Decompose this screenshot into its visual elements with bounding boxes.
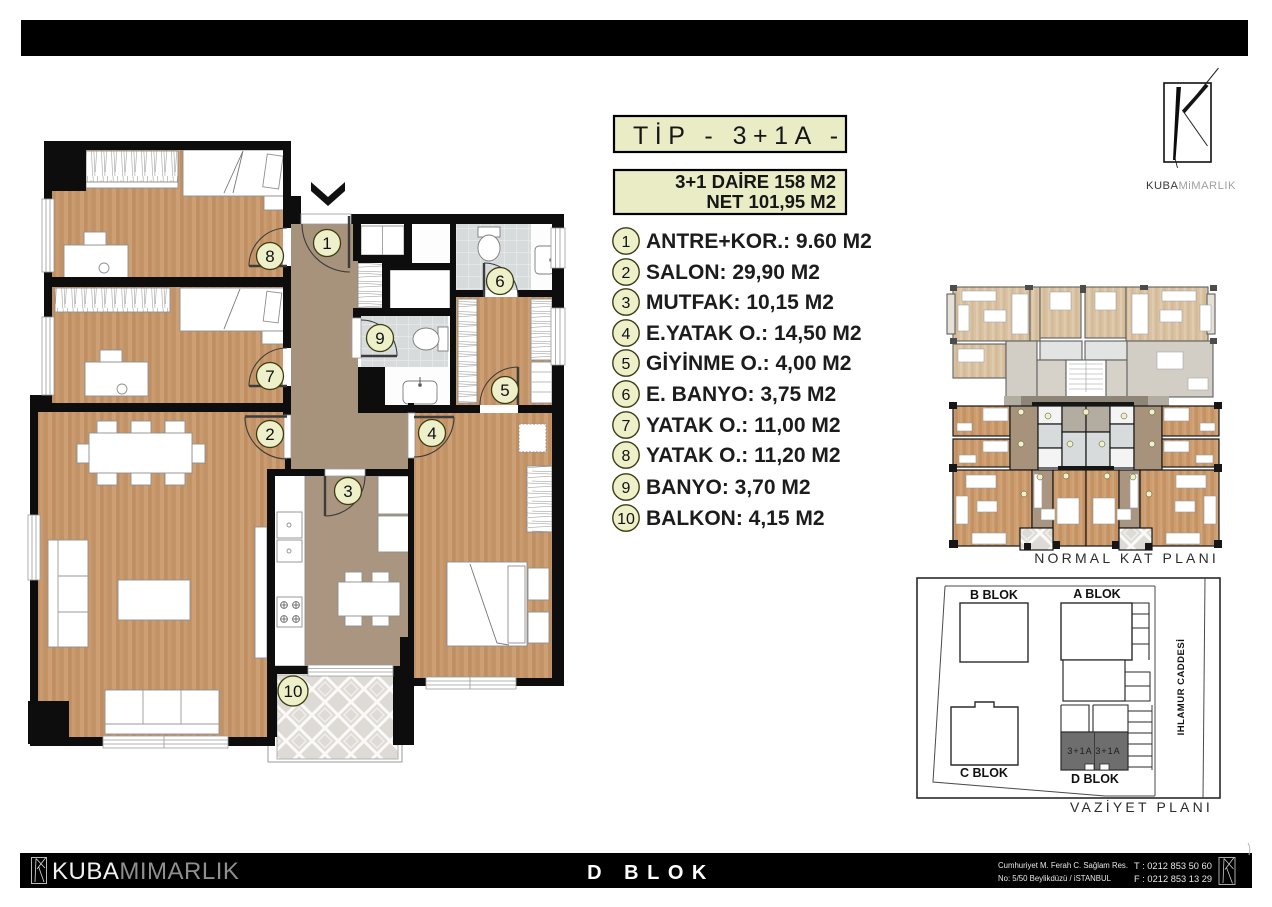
svg-text:KUBAMIMARLIK: KUBAMIMARLIK [52,858,239,885]
svg-text:3+1 DAİRE 158 M2: 3+1 DAİRE 158 M2 [675,171,836,192]
svg-text:E. BANYO: 3,75 M2: E. BANYO: 3,75 M2 [646,383,836,406]
svg-text:7: 7 [622,418,631,435]
svg-text:10: 10 [617,511,635,528]
svg-text:2: 2 [265,425,274,444]
svg-text:BANYO: 3,70 M2: BANYO: 3,70 M2 [646,476,811,499]
svg-text:3+1A: 3+1A [1067,746,1092,756]
svg-text:2: 2 [622,265,631,282]
svg-text:6: 6 [622,387,631,404]
svg-text:3: 3 [343,482,352,501]
svg-text:3: 3 [622,295,631,312]
svg-text:E.YATAK O.: 14,50 M2: E.YATAK O.: 14,50 M2 [646,322,862,345]
svg-text:1: 1 [322,234,331,253]
svg-text:3+1A: 3+1A [1095,746,1120,756]
svg-text:10: 10 [284,682,303,701]
svg-text:Cumhuriyet M. Ferah C. Sağlam: Cumhuriyet M. Ferah C. Sağlam Res. [998,861,1128,870]
svg-text:GİYİNME O.: 4,00 M2: GİYİNME O.: 4,00 M2 [646,352,851,375]
svg-text:9: 9 [375,329,384,348]
svg-text:MUTFAK: 10,15 M2: MUTFAK: 10,15 M2 [646,291,834,314]
svg-text:4: 4 [622,326,631,343]
svg-text:6: 6 [495,272,504,291]
svg-text:ANTRE+KOR.: 9.60 M2: ANTRE+KOR.: 9.60 M2 [646,230,872,253]
svg-text:NORMAL KAT PLANI: NORMAL KAT PLANI [1034,550,1219,566]
svg-text:BALKON: 4,15 M2: BALKON: 4,15 M2 [646,507,825,530]
svg-text:F : 0212 853 13 29: F : 0212 853 13 29 [1134,874,1212,884]
svg-text:D BLOK: D BLOK [1071,772,1119,786]
svg-text:No: 5/50 Beylikdüzü / iSTANBU: No: 5/50 Beylikdüzü / iSTANBUL [998,874,1112,883]
svg-text:VAZİYET PLANI: VAZİYET PLANI [1070,798,1213,815]
svg-text:TİP - 3+1A -: TİP - 3+1A - [633,121,845,150]
svg-text:A BLOK: A BLOK [1073,587,1120,601]
svg-text:YATAK O.: 11,20 M2: YATAK O.: 11,20 M2 [646,444,841,467]
svg-text:D BLOK: D BLOK [587,862,715,884]
svg-text:YATAK O.: 11,00 M2: YATAK O.: 11,00 M2 [646,414,841,437]
svg-text:IHLAMUR CADDESİ: IHLAMUR CADDESİ [1176,639,1187,736]
svg-text:5: 5 [622,356,631,373]
svg-text:7: 7 [265,367,274,386]
svg-text:5: 5 [500,381,509,400]
svg-text:9: 9 [622,480,631,497]
svg-text:C BLOK: C BLOK [960,766,1008,780]
svg-text:8: 8 [265,247,274,266]
svg-text:SALON: 29,90 M2: SALON: 29,90 M2 [646,261,820,284]
svg-text:KUBAMiMARLIK: KUBAMiMARLIK [1146,180,1236,192]
svg-text:NET 101,95 M2: NET 101,95 M2 [706,191,836,212]
svg-text:4: 4 [427,424,436,443]
svg-text:8: 8 [622,448,631,465]
svg-text:B BLOK: B BLOK [970,588,1018,602]
svg-text:1: 1 [622,234,631,251]
svg-text:T : 0212 853 50 60: T : 0212 853 50 60 [1134,861,1212,871]
